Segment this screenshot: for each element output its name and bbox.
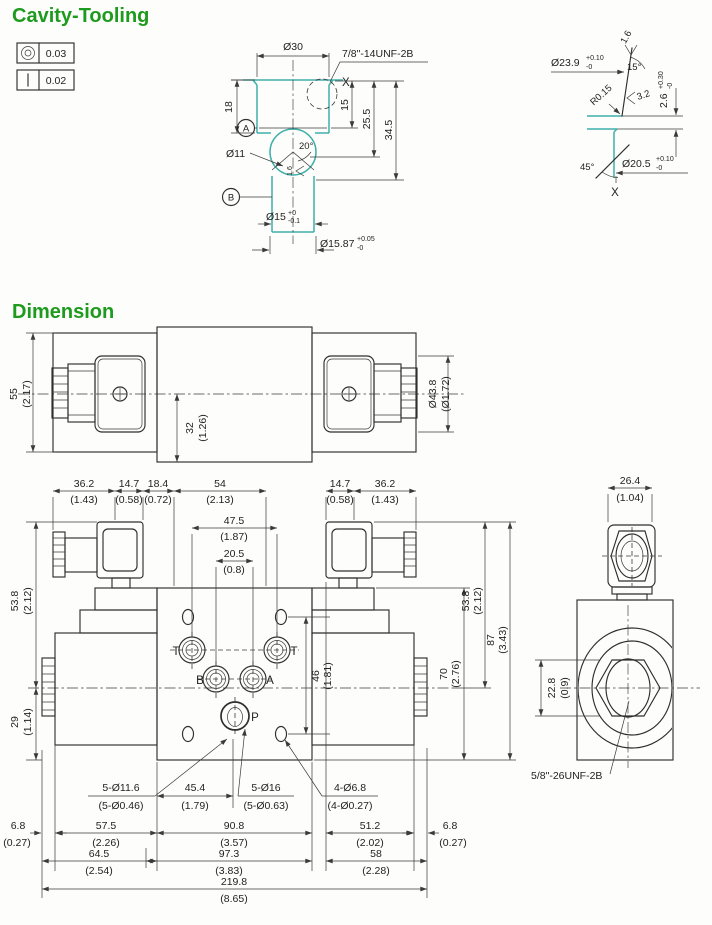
dim-r0-15: R0.15 [588,83,620,114]
tube-nut [401,368,417,418]
dia43-8-mm: Ø43.8 [427,380,439,409]
dim-54-in: (2.13) [206,494,233,506]
dim-25-5: 25.5 [310,81,380,157]
cavity-tooling-title: Cavity-Tooling [12,5,149,27]
dim-54-mm: 54 [214,478,226,490]
dim-46-mm: 46 [310,670,322,682]
dim-53-8-right-in: (2.12) [472,587,484,614]
solenoid-right-top [312,333,417,452]
washer [612,587,652,594]
port-t-right-label: T [290,646,297,658]
dim-26-4: 26.4 (1.04) [608,475,652,522]
dim-36-2-right-in: (1.43) [371,494,398,506]
port-b-label: B [196,675,204,687]
dim-34-5-label: 34.5 [383,120,395,141]
solenoid-right-front [312,522,427,745]
dimension-title: Dimension [12,301,114,323]
dim-32-mm: 32 [184,422,196,434]
detail-x-label: X [611,176,619,199]
mounting-hole [183,727,194,742]
dim-53-8-left-in: (2.12) [22,587,34,614]
dim-64-5-mm: 64.5 [89,848,110,860]
side-thread-callout: 5/8"-26UNF-2B [531,701,629,782]
detail-x-view: 1.6 Ø23.9 +0.10 -0 15° R0.15 3.2 2.6 +0.… [551,29,688,199]
dim-53-8-right-mm: 53.8 [460,591,472,612]
front-view: T T B A P 36.2 (1.43) 14.7 [3,478,516,905]
port-p-label: P [251,712,259,724]
dim-26-4-mm: 26.4 [620,475,641,487]
angle-20-label: 20° [299,141,314,152]
top-view: 55 (2.17) 32 (1.26) Ø43.8 (Ø1.72) [8,327,466,462]
dim-6-8-left-in: (0.27) [3,837,30,849]
mounting-hole [276,727,287,742]
retaining-nut [414,658,427,716]
dia30-label: Ø30 [283,41,303,53]
detail-x-letter: X [611,187,619,199]
callout-5xd11-6-mm: 5-Ø11.6 [102,782,139,794]
dim-53-8-left-mm: 53.8 [9,591,21,612]
cavity-profile [231,60,404,244]
finish-chamfer-value: 1.6 [618,29,634,46]
dim-14-7-right-in: (0.58) [326,494,353,506]
side-view: 26.4 (1.04) 22.8 (0.9) 5/8"-26UNF-2B [531,475,700,782]
front-right-dims: 70 (2.76) 53.8 (2.12) 87 (3.43) [314,522,516,760]
dim-22-8-mm: 22.8 [546,678,558,699]
dia23-9-label: Ø23.9 [551,57,580,69]
datum-b: B [223,189,273,206]
dim-36-2-right-mm: 36.2 [375,478,396,490]
retaining-nut [42,658,55,716]
dim-58-mm: 58 [370,848,382,860]
dim-dia15-87: Ø15.87 +0.05 -0 [252,236,375,254]
dia20-5-tol-upper: +0.10 [656,156,674,163]
dim-58-in: (2.28) [362,865,389,877]
dia15-87-tol-upper: +0.05 [357,236,375,243]
dim-14-7-right-mm: 14.7 [330,478,351,490]
finish-3-2-value: 3.2 [636,88,652,103]
dim-70-mm: 70 [438,668,450,680]
d2-6-tol-lower: -0 [667,83,674,89]
dim-6-8-right-in: (0.27) [439,837,466,849]
dia15-label: Ø15 [266,211,286,223]
front-bottom-dims: 6.8 (0.27) 57.5 (2.26) 90.8 (3.57) 51.2 … [3,582,466,905]
drawing-page: Cavity-Tooling Dimension 0.03 0.02 Ø30 7… [0,0,712,925]
dia23-9-tol-lower: -0 [586,64,592,71]
tube-nut [52,368,68,418]
dia15-tol-upper: +0 [288,210,296,217]
detail-x-letter: X [342,77,350,89]
dim-18-4-mm: 18.4 [148,478,169,490]
tolerance-frame-concentricity: 0.03 [17,43,74,63]
d2-6-label: 2.6 [658,93,670,108]
dim-29-mm: 29 [9,716,21,728]
dim-18-4-in: (0.72) [144,494,171,506]
dim-25-5-label: 25.5 [361,109,373,130]
thread-label: 7/8"-14UNF-2B [342,48,413,60]
dia23-9-tol-upper: +0.10 [586,55,604,62]
dim-47-5-mm: 47.5 [224,515,245,527]
dim-18: 18 [223,80,255,133]
finish-bore-value: 1.6 [287,166,294,176]
callout-4xd6-8-in: (4-Ø0.27) [328,800,373,812]
dim-87-in: (3.43) [497,626,509,653]
dim-2-6: 2.6 +0.30 -0 [658,71,676,157]
dim-36-2-left-mm: 36.2 [74,478,95,490]
dim-32: 32 (1.26) [177,394,209,462]
finish-mark-3-2: 3.2 [627,88,651,104]
dim-20-5-mm: 20.5 [224,548,245,560]
r0-15-label: R0.15 [588,83,614,108]
valve-body-side [577,600,673,760]
top-nut [602,525,662,587]
angle-15-dim: 15° [627,57,645,73]
dim-26-4-in: (1.04) [616,492,643,504]
dim-36-2-left-in: (1.43) [70,494,97,506]
dia11-label: Ø11 [226,148,245,160]
dim-64-5-in: (2.54) [85,865,112,877]
port-t-left-label: T [172,646,179,658]
dim-6-8-left-mm: 6.8 [11,820,26,832]
dim-dia15: Ø15 +0 -0.1 [258,210,328,225]
dim-6-8-right-mm: 6.8 [443,820,458,832]
dim-14-7-left-mm: 14.7 [119,478,140,490]
dim-70-in: (2.76) [450,660,462,687]
manifold-top [157,327,312,462]
dim-45-4-in: (1.79) [181,800,208,812]
datum-b-letter: B [228,193,234,204]
dim-57-5-mm: 57.5 [96,820,117,832]
dia15-87-tol-lower: -0 [357,245,363,252]
datum-a: A [238,120,258,137]
dim-55-in: (2.17) [21,380,33,407]
dim-dia11: Ø11 [226,148,283,166]
dim-87-mm: 87 [485,634,497,646]
washer [617,594,647,600]
callout-4xd6-8-mm: 4-Ø6.8 [334,782,366,794]
port-a-label: A [266,675,274,687]
dim-97-3-mm: 97.3 [219,848,240,860]
dim-18-label: 18 [223,101,235,113]
dia15-87-label: Ø15.87 [320,238,355,250]
callout-5xd16-in: (5-Ø0.63) [244,800,289,812]
dim-dia20-5: Ø20.5 +0.10 -0 [616,156,688,173]
dim-15-label: 15 [339,99,351,111]
dim-32-in: (1.26) [197,414,209,441]
dia20-5-label: Ø20.5 [622,158,651,170]
dia15-tol-lower: -0.1 [288,218,300,225]
dim-47-5-in: (1.87) [220,531,247,543]
concentricity-value: 0.03 [46,48,67,60]
side-thread-label: 5/8"-26UNF-2B [531,770,602,782]
dim-20-5-in: (0.8) [223,564,245,576]
cable-gland [53,532,65,577]
dia20-5-tol-lower: -0 [656,165,662,172]
dim-90-8-mm: 90.8 [224,820,245,832]
dim-55: 55 (2.17) [8,333,56,452]
technical-drawing: Cavity-Tooling Dimension 0.03 0.02 Ø30 7… [0,0,712,925]
dim-14-7-left-in: (0.58) [115,494,142,506]
port-p: P [221,702,259,730]
angle-45-label: 45° [580,162,595,173]
d2-6-tol-upper: +0.30 [658,71,665,89]
dim-46-in: (1.81) [322,662,334,689]
dim-dia30: Ø30 [257,41,329,77]
dim-46: 46 (1.81) [288,617,334,734]
dim-219-8-in: (8.65) [220,893,247,905]
dim-55-mm: 55 [8,388,20,400]
port-face: T T B A P [170,610,299,742]
dim-dia23-9: Ø23.9 +0.10 -0 [551,55,624,72]
callout-5xd16-mm: 5-Ø16 [251,782,280,794]
solenoid-left-front [42,522,157,745]
dim-22-8-in: (0.9) [559,677,571,699]
angle-15-label: 15° [627,62,642,73]
dim-51-2-mm: 51.2 [360,820,381,832]
dim-20-5: 20.5 (0.8) [216,548,253,665]
callout-5xd11-6-in: (5-Ø0.46) [99,800,144,812]
dim-45-4-mm: 45.4 [185,782,206,794]
dia43-8-in: (Ø1.72) [440,376,452,412]
solenoid-left-top [52,333,157,452]
cavity-section-view: Ø30 7/8"-14UNF-2B X 18 15 25.5 34.5 A B [223,41,429,254]
dim-219-8-mm: 219.8 [221,876,247,888]
straightness-value: 0.02 [46,75,67,87]
finish-mark-chamfer: 1.6 [618,29,637,55]
surface-finish-icon [627,92,635,104]
tolerance-frame-straightness: 0.02 [17,70,74,90]
concentricity-icon [22,47,35,60]
side-view-centerlines [560,605,700,768]
dim-29-in: (1.14) [22,708,34,735]
datum-a-letter: A [243,124,250,135]
cable-gland [404,532,416,577]
